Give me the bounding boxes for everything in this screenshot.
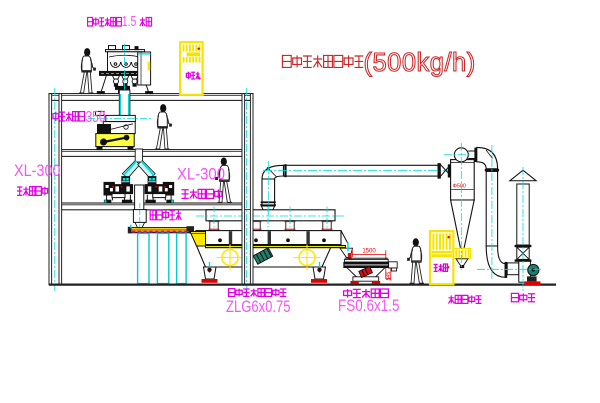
svg-text:ZLG6x0.75: ZLG6x0.75 bbox=[226, 297, 291, 316]
svg-text:1.5: 1.5 bbox=[122, 13, 137, 30]
svg-text:XL-300: XL-300 bbox=[14, 161, 61, 180]
svg-text:FS0.6x1.5: FS0.6x1.5 bbox=[338, 296, 400, 315]
svg-text:(500kg/h): (500kg/h) bbox=[364, 49, 476, 77]
svg-text:1500: 1500 bbox=[362, 249, 376, 255]
svg-text:545: 545 bbox=[386, 272, 392, 281]
svg-text:Φ500: Φ500 bbox=[453, 184, 466, 190]
svg-text:350: 350 bbox=[86, 109, 106, 126]
svg-text:XL-300: XL-300 bbox=[177, 165, 225, 184]
